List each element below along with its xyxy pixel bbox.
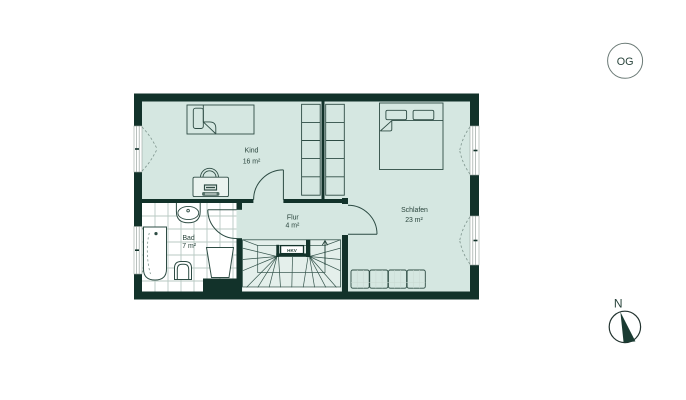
svg-text:OG: OG — [617, 56, 634, 68]
svg-text:Schlafen: Schlafen — [401, 207, 428, 214]
svg-text:Bad: Bad — [182, 235, 194, 242]
svg-text:7 m²: 7 m² — [182, 243, 196, 250]
svg-text:Kind: Kind — [245, 148, 259, 155]
svg-text:23 m²: 23 m² — [405, 217, 423, 224]
svg-text:4 m²: 4 m² — [286, 223, 300, 230]
svg-text:N: N — [614, 297, 623, 311]
svg-text:Flur: Flur — [287, 214, 300, 221]
svg-text:HKV: HKV — [287, 248, 298, 253]
svg-text:16 m²: 16 m² — [243, 159, 261, 166]
